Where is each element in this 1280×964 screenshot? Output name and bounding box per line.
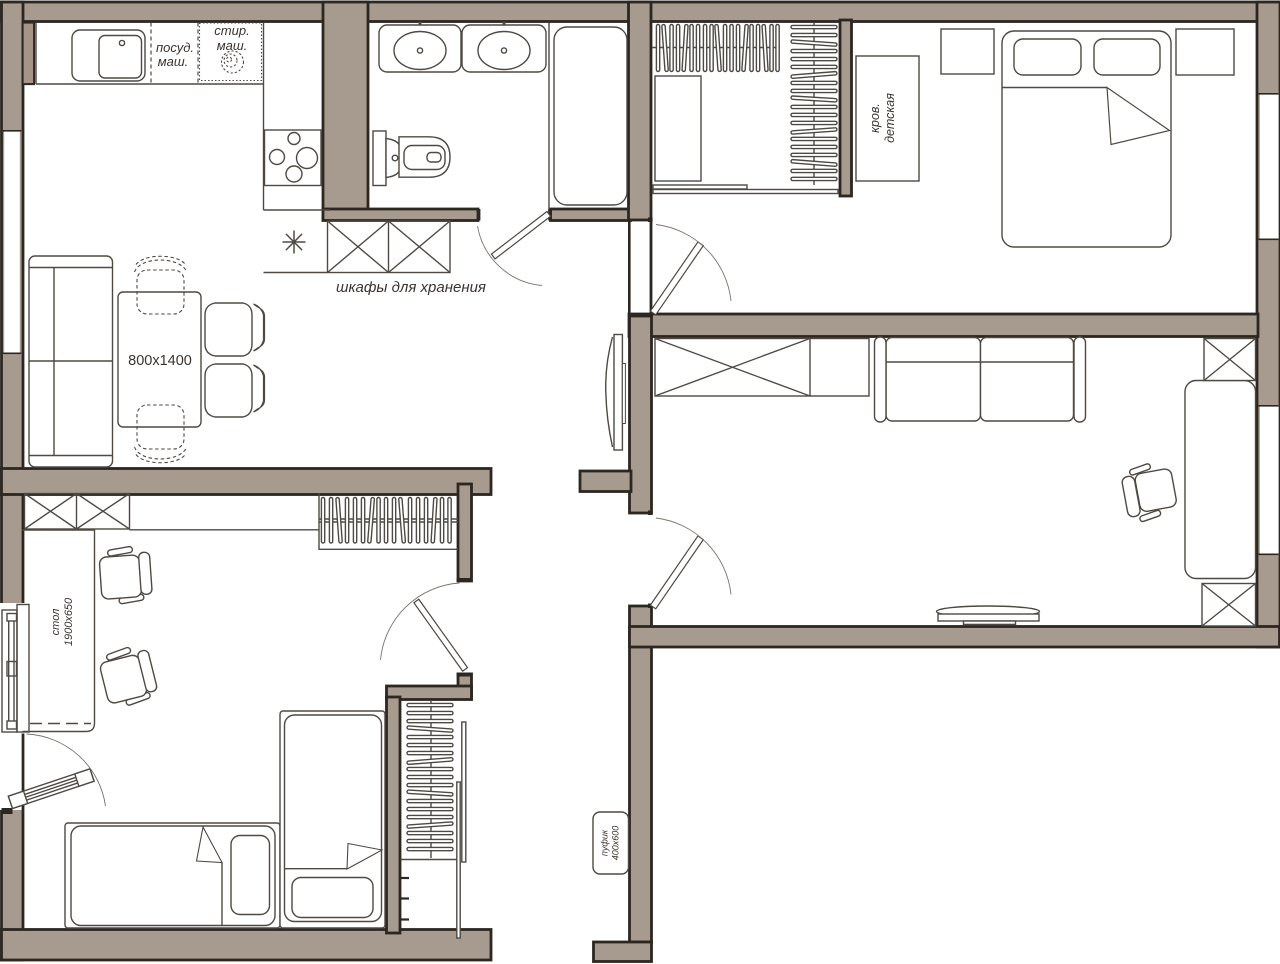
svg-text:маш.: маш. [217, 38, 248, 53]
svg-text:стир.: стир. [214, 23, 249, 38]
svg-text:800x1400: 800x1400 [128, 353, 192, 369]
svg-text:посуд.: посуд. [156, 40, 194, 55]
svg-text:маш.: маш. [158, 54, 189, 69]
svg-text:пуфик: пуфик [600, 829, 610, 856]
svg-text:1900х650: 1900х650 [63, 597, 75, 646]
svg-text:стол: стол [50, 609, 62, 636]
svg-text:шкафы для хранения: шкафы для хранения [336, 279, 486, 296]
svg-text:400х600: 400х600 [611, 826, 621, 861]
svg-text:кров.: кров. [868, 103, 882, 133]
svg-text:детская: детская [883, 93, 897, 143]
